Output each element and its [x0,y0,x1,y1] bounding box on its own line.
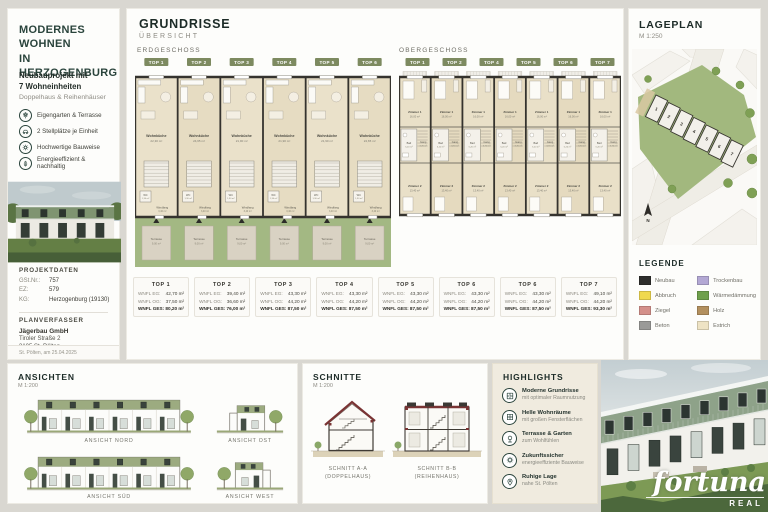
svg-text:TOP 6: TOP 6 [362,60,377,65]
svg-text:1,30 m²: 1,30 m² [312,197,320,200]
elevation-west-label: ANSICHT WEST [210,494,290,500]
elevation-east-drawing [210,391,290,437]
svg-text:WC: WC [314,193,318,197]
svg-text:WC: WC [357,193,361,197]
garden-icon [22,112,29,119]
svg-text:Bad: Bad [502,141,507,145]
erdgeschoss-floorplan: TOP 1TOP 2TOP 3TOP 4TOP 5TOP 6Wohnküche2… [135,55,391,267]
svg-text:Wohnküche: Wohnküche [189,134,209,138]
svg-text:13,40 m²: 13,40 m² [505,188,515,192]
svg-text:3,40 m²: 3,40 m² [372,210,380,213]
legend-swatch [639,276,651,285]
left-info-panel: MODERNES WOHNEN IN HERZOGENBURG Neubaupr… [7,8,120,360]
svg-text:Windfang: Windfang [284,206,296,210]
legende-heading: LEGENDE [639,259,685,268]
svg-text:5,20 m²: 5,20 m² [469,145,477,148]
grundrisse-panel: GRUNDRISSE ÜBERSICHT ERDGESCHOSS OBERGES… [126,8,624,360]
svg-text:Terrasse: Terrasse [236,237,248,241]
feature-label: 2 Stellplätze je Einheit [37,128,98,135]
svg-text:Windfang: Windfang [327,206,339,210]
lageplan-panel: LAGEPLAN M 1:250 1234567 [628,8,761,360]
legend-item: Abbruch [639,288,697,303]
highlight-item: Moderne Grundrissemit optimaler Raumnutz… [502,388,592,403]
svg-text:9,00 m²: 9,00 m² [152,241,161,245]
svg-text:Zimmer 2: Zimmer 2 [535,184,549,188]
highlights-panel: HIGHLIGHTS Moderne Grundrissemit optimal… [492,363,598,504]
svg-text:9,00 m²: 9,00 m² [237,241,246,245]
svg-text:Gang: Gang [547,140,554,144]
erdgeschoss-label: ERDGESCHOSS [137,47,201,54]
svg-text:Zimmer 2: Zimmer 2 [598,184,612,188]
svg-text:Bad: Bad [470,141,475,145]
obergeschoss-floorplan: TOP 1TOP 2TOP 4TOP 5TOP 6TOP 7Zimmer 116… [399,55,621,221]
brand-logo: fortuna REAL [646,471,766,508]
svg-text:Terrasse: Terrasse [279,237,291,241]
ansichten-panel: ANSICHTEN M 1:200 ANSICHT NORD ANSICHT O… [7,363,298,504]
unit-card: TOP 3WNFL EG:43,30 m²WNFL OG:44,20 m²WNF… [255,277,311,317]
svg-text:TOP 2: TOP 2 [447,60,462,65]
svg-text:1,30 m²: 1,30 m² [142,197,150,200]
schnitte-panel: SCHNITTE M 1:200 [302,363,488,504]
legend-swatch [639,291,651,300]
svg-text:Terrasse: Terrasse [151,237,163,241]
svg-text:Bad: Bad [438,141,443,145]
svg-text:Zimmer 2: Zimmer 2 [567,184,581,188]
brand-sub: REAL [646,499,766,508]
svg-text:TOP 1: TOP 1 [149,60,164,65]
elevation-east-label: ANSICHT OST [210,438,290,444]
unit-card: TOP 6WNFL EG:43,30 m²WNFL OG:44,20 m²WNF… [439,277,495,317]
highlights-list: Moderne Grundrissemit optimaler Raumnutz… [502,388,592,496]
svg-text:Terrasse: Terrasse [321,237,333,241]
window-icon [506,413,514,421]
feature-label: Hochwertige Bauweise [37,144,100,151]
svg-text:5,20 m²: 5,20 m² [564,145,572,148]
svg-text:16,00 m²: 16,00 m² [568,114,578,118]
schnitte-title: SCHNITTE [313,372,362,382]
section-bb-label: SCHNITT B-B (REIHENHAUS) [391,466,483,482]
highlight-item: Helle Wohnräumemit großen Fensterflächen [502,410,592,425]
svg-text:TOP 5: TOP 5 [521,60,536,65]
section-aa-label: SCHNITT A-A (DOPPELHAUS) [309,466,387,482]
unit-area-table: TOP 1WNFL EG:42,70 m²WNFL OG:37,50 m²WNF… [133,277,617,317]
svg-text:16,00 m²: 16,00 m² [473,114,483,118]
svg-text:TOP 5: TOP 5 [319,60,334,65]
feature-item: Hochwertige Bauweise [19,139,113,155]
svg-text:Zimmer 1: Zimmer 1 [567,110,581,114]
legend-item: Ziegel [639,303,697,318]
svg-text:16,00 m²: 16,00 m² [537,114,547,118]
feature-item: 2 Stellplätze je Einheit [19,123,113,139]
project-subtitle: Neubauprojekt mit 7 Wohneinheiten [19,71,87,92]
svg-text:Zimmer 2: Zimmer 2 [440,184,454,188]
title-line: MODERNES [19,23,119,37]
project-photo-small [8,181,121,263]
svg-text:1,30 m²: 1,30 m² [270,197,278,200]
svg-text:5,20 m²: 5,20 m² [596,145,604,148]
svg-text:9,00 m²: 9,00 m² [280,241,289,245]
svg-text:WC: WC [143,193,147,197]
svg-text:Zimmer 2: Zimmer 2 [503,184,517,188]
lageplan-scale: M 1:250 [639,33,663,40]
svg-text:1,30 m²: 1,30 m² [355,197,363,200]
svg-text:Zimmer 2: Zimmer 2 [472,184,486,188]
svg-text:21,90 m²: 21,90 m² [278,139,290,143]
legend-item: Holz [697,303,756,318]
svg-text:16,00 m²: 16,00 m² [441,114,451,118]
svg-text:Windfang: Windfang [156,206,168,210]
svg-text:24,65 m²: 24,65 m² [193,139,205,143]
svg-text:Wohnküche: Wohnküche [360,134,380,138]
svg-text:TOP 4: TOP 4 [277,60,292,65]
elevation-north-drawing [16,391,202,437]
svg-text:Gang: Gang [579,140,586,144]
schnitte-scale: M 1:200 [313,383,333,389]
svg-text:Bad: Bad [407,141,412,145]
svg-text:Windfang: Windfang [199,206,211,210]
svg-text:Wohnküche: Wohnküche [232,134,252,138]
ansichten-scale: M 1:200 [18,383,38,389]
svg-text:Gang: Gang [420,140,427,144]
svg-text:Gang: Gang [515,140,522,144]
planverfasser-heading: PLANVERFASSER [19,317,111,324]
projektdaten-rows: GSt.Nr.:757EZ:579KG:Herzogenburg (19130) [19,278,111,303]
svg-text:3,40 m²: 3,40 m² [286,210,294,213]
legend-item: Neubau [639,273,697,288]
svg-text:Wohnküche: Wohnküche [146,134,166,138]
section-aa-drawing [309,392,387,464]
unit-card: TOP 2WNFL EG:39,40 m²WNFL OG:36,60 m²WNF… [194,277,250,317]
future-icon [506,456,514,464]
feature-label: Energieeffizient & nachhaltig [37,156,113,170]
feature-item: Energieeffizient & nachhaltig [19,155,113,171]
building-photo-illustration [8,181,121,263]
project-board: MODERNES WOHNEN IN HERZOGENBURG Neubaupr… [0,0,768,512]
quality-icon [22,144,29,151]
svg-text:TOP 7: TOP 7 [595,60,610,65]
svg-text:WC: WC [271,193,275,197]
svg-text:Terrasse: Terrasse [193,237,205,241]
svg-text:Zimmer 1: Zimmer 1 [503,110,517,114]
brand-underline [646,497,764,499]
svg-text:3,40 m²: 3,40 m² [201,210,209,213]
projekt-row: EZ:579 [19,287,111,293]
floorplan-icon [506,392,514,400]
projekt-row: GSt.Nr.:757 [19,278,111,284]
lageplan-title: LAGEPLAN [639,19,703,31]
svg-text:13,40 m²: 13,40 m² [473,188,483,192]
legend-swatch [697,291,709,300]
elevation-south-drawing [16,448,202,494]
svg-text:13,40 m²: 13,40 m² [568,188,578,192]
section-bb-drawing [391,392,483,464]
svg-text:Wohnküche: Wohnküche [317,134,337,138]
svg-text:5,20 m²: 5,20 m² [437,145,445,148]
planverfasser-name: Jägerbau GmbH [19,328,111,335]
svg-text:Wohnküche: Wohnküche [274,134,294,138]
car-icon [22,128,29,135]
svg-text:16,00 m²: 16,00 m² [410,114,420,118]
svg-text:5,20 m²: 5,20 m² [500,145,508,148]
site-plan: 1234567 N [632,49,757,245]
elevation-west-drawing [210,448,290,494]
svg-text:Zimmer 1: Zimmer 1 [408,110,422,114]
feature-list: Eigengarten & Terrasse2 Stellplätze je E… [19,107,113,171]
unit-card: TOP 7WNFL EG:49,10 m²WNFL OG:44,20 m²WNF… [561,277,617,317]
svg-text:Windfang: Windfang [370,206,382,210]
divider [19,312,108,313]
obergeschoss-label: OBERGESCHOSS [399,47,469,54]
svg-text:TOP 4: TOP 4 [484,60,499,65]
legend-item: Wärmedämmung [697,288,756,303]
svg-text:9,00 m²: 9,00 m² [365,241,374,245]
svg-text:TOP 2: TOP 2 [191,60,206,65]
legend-item: Trockenbau [697,273,756,288]
svg-text:13,40 m²: 13,40 m² [441,188,451,192]
title-line: WOHNEN [19,37,119,51]
legend-swatch [697,306,709,315]
tree-icon [506,435,514,443]
legend-grid: NeubauAbbruchZiegelBetonTrockenbauWärmed… [639,273,756,333]
svg-text:3,40 m²: 3,40 m² [244,210,252,213]
legend-swatch [697,276,709,285]
svg-text:WC: WC [229,193,233,197]
svg-text:13,40 m²: 13,40 m² [410,188,420,192]
svg-text:21,90 m²: 21,90 m² [321,139,333,143]
ansichten-title: ANSICHTEN [18,372,75,382]
highlight-item: Ruhige Lagenahe St. Pölten [502,474,592,489]
svg-text:Gang: Gang [483,140,490,144]
grundrisse-title: GRUNDRISSE [139,17,230,31]
svg-text:N: N [646,218,649,223]
legend-swatch [697,321,709,330]
projektdaten-section: PROJEKTDATEN GSt.Nr.:757EZ:579KG:Herzoge… [19,267,111,303]
unit-card: TOP 4WNFL EG:43,30 m²WNFL OG:44,20 m²WNF… [316,277,372,317]
legend-item: Estrich [697,318,756,333]
svg-text:Gang: Gang [452,140,459,144]
svg-text:Zimmer 2: Zimmer 2 [408,184,422,188]
elevation-south-label: ANSICHT SÜD [16,494,202,500]
projekt-row: KG:Herzogenburg (19130) [19,297,111,303]
svg-text:Bad: Bad [597,141,602,145]
svg-text:Bad: Bad [533,141,538,145]
svg-text:16,00 m²: 16,00 m² [505,114,515,118]
svg-text:1,30 m²: 1,30 m² [227,197,235,200]
svg-text:Terrasse: Terrasse [364,237,376,241]
svg-text:16,00 m²: 16,00 m² [600,114,610,118]
feature-item: Eigengarten & Terrasse [19,107,113,123]
unit-card: TOP 6WNFL EG:43,30 m²WNFL OG:44,20 m²WNF… [500,277,556,317]
svg-text:3,40 m²: 3,40 m² [158,210,166,213]
unit-card: TOP 5WNFL EG:43,30 m²WNFL OG:44,20 m²WNF… [378,277,434,317]
svg-text:13,40 m²: 13,40 m² [537,188,547,192]
elevation-north-label: ANSICHT NORD [16,438,202,444]
svg-text:24,65 m²: 24,65 m² [364,139,376,143]
feature-label: Eigengarten & Terrasse [37,112,102,119]
svg-text:1,30 m²: 1,30 m² [184,197,192,200]
svg-text:Bad: Bad [565,141,570,145]
highlight-item: Terrasse & Gartenzum Wohlfühlen [502,431,592,446]
svg-text:22,30 m²: 22,30 m² [150,139,162,143]
svg-text:9,00 m²: 9,00 m² [323,241,332,245]
legend-item: Beton [639,318,697,333]
projektdaten-heading: PROJEKTDATEN [19,267,111,274]
unit-card: TOP 1WNFL EG:42,70 m²WNFL OG:37,50 m²WNF… [133,277,189,317]
svg-text:Zimmer 1: Zimmer 1 [535,110,549,114]
svg-text:5,20 m²: 5,20 m² [532,145,540,148]
svg-text:21,90 m²: 21,90 m² [236,139,248,143]
legend-swatch [639,306,651,315]
svg-text:TOP 3: TOP 3 [234,60,249,65]
svg-text:Zimmer 1: Zimmer 1 [598,110,612,114]
highlights-title: HIGHLIGHTS [503,372,563,382]
highlight-item: Zukunftssicherenergieeffiziente Bauweise [502,453,592,468]
grundrisse-subtitle: ÜBERSICHT [139,33,199,40]
date-footer: St. Pölten, am 25.04.2025 [8,345,119,359]
svg-text:Gang: Gang [610,140,617,144]
svg-text:13,40 m²: 13,40 m² [600,188,610,192]
svg-text:TOP 6: TOP 6 [558,60,573,65]
location-icon [506,478,514,486]
svg-text:5,20 m²: 5,20 m² [405,145,413,148]
svg-text:Zimmer 1: Zimmer 1 [440,110,454,114]
svg-text:Windfang: Windfang [242,206,254,210]
brand-name: fortuna [646,471,766,495]
render-photo: fortuna REAL [601,360,768,512]
svg-text:3,40 m²: 3,40 m² [329,210,337,213]
svg-text:9,00 m²: 9,00 m² [195,241,204,245]
svg-text:TOP 1: TOP 1 [410,60,425,65]
svg-text:Zimmer 1: Zimmer 1 [472,110,486,114]
leaf-icon [22,160,29,167]
legend-swatch [639,321,651,330]
project-type: Doppelhaus & Reihenhäuser [19,94,106,101]
svg-text:WC: WC [186,193,190,197]
